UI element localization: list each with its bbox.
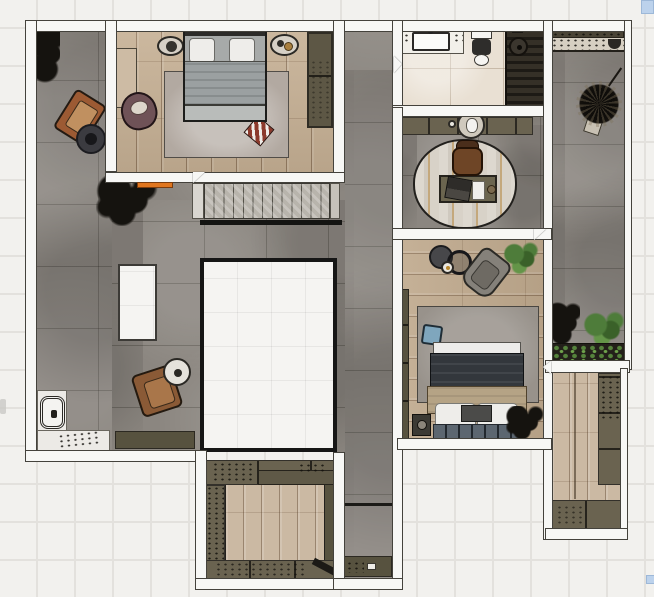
knob-decor — [448, 120, 456, 128]
orange-doormat — [137, 182, 173, 188]
wall-bathroom-bottom — [392, 105, 552, 117]
wall-dressing-bottom — [195, 578, 343, 590]
shower-floor — [505, 26, 545, 109]
candle-icon — [446, 266, 450, 270]
nightstand-left — [157, 36, 184, 56]
round-side-table-dark — [76, 124, 106, 154]
small-floor-void — [118, 264, 157, 341]
large-floor-void — [200, 258, 337, 452]
console-vase — [367, 563, 376, 570]
pillow — [189, 38, 215, 63]
stair-treads — [204, 183, 330, 219]
pillow — [229, 38, 255, 63]
closet-plank-divider — [574, 373, 576, 499]
shower-fixture-icon — [509, 37, 528, 56]
toilet-bowl — [474, 54, 489, 66]
kettle-icon — [466, 118, 478, 133]
door-leaf-closet — [543, 361, 551, 374]
armchair-cushion — [129, 99, 150, 117]
wall-mid-vertical — [392, 107, 403, 590]
stair-edge-shadow — [200, 220, 342, 225]
tray-table-white — [441, 261, 454, 274]
cup-icon — [174, 369, 182, 377]
folded-throw — [461, 405, 492, 422]
wall-dressing-left — [195, 450, 207, 590]
console-clutter — [346, 561, 364, 573]
chair-seat — [452, 147, 483, 176]
balcony-tree — [576, 81, 622, 127]
toilet — [471, 28, 492, 67]
nightstand-right — [270, 34, 299, 56]
notepad — [472, 181, 485, 200]
decor-clock — [417, 420, 427, 430]
dressing-bottom-clutter — [215, 562, 305, 578]
wardrobe-clutter — [310, 60, 330, 120]
desk-cup — [487, 185, 496, 194]
wall-corridor-bottom — [333, 578, 403, 590]
wall-balcony-closet — [545, 360, 630, 373]
dressing-left-column — [205, 485, 225, 562]
wall-bedroom2-bottom — [397, 438, 552, 450]
wall-bedroom2-top — [392, 228, 552, 240]
toiletry-items — [403, 33, 412, 42]
floor-plan-canvas — [0, 0, 654, 597]
toiletry-items — [453, 33, 463, 43]
wall-closet-bottom — [545, 528, 628, 540]
viewport-handle-top-right[interactable] — [641, 0, 654, 14]
dressing-clutter-b — [298, 463, 324, 473]
decor-dark — [277, 40, 284, 47]
sink-basin — [412, 32, 450, 51]
wall-closet-right — [620, 368, 628, 540]
vanity-counter — [400, 29, 464, 54]
bedroom2-plant-icon — [502, 241, 540, 277]
laptop — [444, 176, 472, 202]
dressing-clutter-a — [212, 462, 256, 482]
wall-outer-right — [624, 20, 632, 370]
desk-chair — [452, 140, 483, 176]
balcony-hedge-planter — [551, 343, 625, 361]
wall-left — [25, 20, 37, 462]
edge-watermark-artifact — [0, 399, 6, 414]
bedside-plant-silhouette — [506, 406, 544, 440]
drain-dot — [517, 45, 522, 50]
dressing-floor — [225, 484, 325, 562]
wall-plant-icon — [34, 23, 60, 87]
duvet — [185, 61, 265, 105]
closet-shelf-clutter — [600, 375, 620, 419]
bed-double-gray — [183, 29, 267, 122]
door-leaf-bathroom — [394, 56, 402, 73]
stair-landing — [192, 183, 204, 219]
staircase — [192, 183, 342, 226]
decor-bowl — [166, 41, 177, 52]
wall-bedroom1-left — [105, 20, 117, 172]
wall-bedroom1-right — [333, 20, 345, 183]
decor-gold — [284, 42, 293, 51]
toilet-lid — [472, 39, 491, 55]
door-leaf-bedroom2 — [534, 229, 546, 240]
corridor-console — [342, 556, 392, 577]
viewport-handle-bottom-right[interactable] — [646, 575, 654, 584]
corridor-threshold-line — [343, 503, 392, 506]
closet-bottom-clutter — [556, 505, 582, 525]
wall-right-column — [543, 20, 553, 540]
spa-tub — [40, 396, 65, 429]
tub-drain — [51, 410, 57, 418]
stair-top-cap — [330, 183, 340, 219]
wall-dressing-right — [333, 452, 345, 582]
door-leaf-bedroom1 — [193, 172, 205, 183]
round-side-table-light — [163, 358, 191, 386]
table-decor — [85, 133, 97, 145]
armchair-cushion — [469, 258, 502, 291]
foot-blanket — [185, 104, 265, 120]
wall-terrace-bottom — [25, 450, 207, 462]
window-planter-row — [115, 431, 195, 449]
